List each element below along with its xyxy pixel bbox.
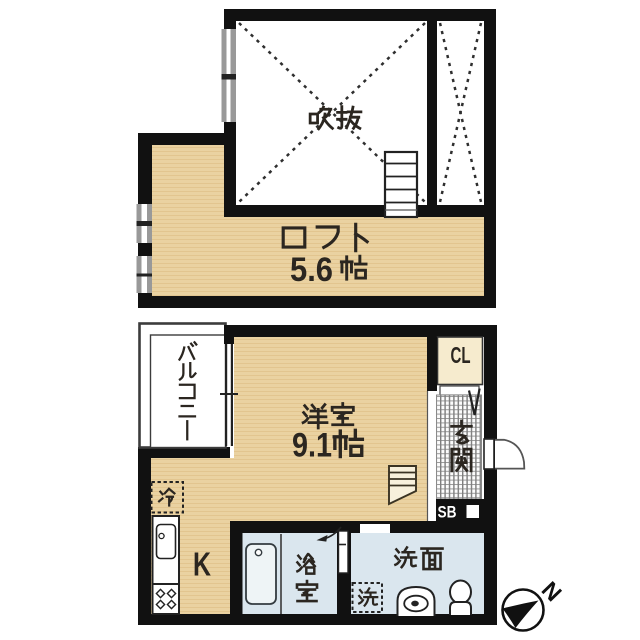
svg-text:K: K xyxy=(193,546,211,583)
svg-text:CL: CL xyxy=(451,342,471,368)
svg-text:9.1: 9.1 xyxy=(292,427,332,465)
svg-text:SB: SB xyxy=(438,504,457,522)
svg-text:5.6: 5.6 xyxy=(290,251,333,289)
